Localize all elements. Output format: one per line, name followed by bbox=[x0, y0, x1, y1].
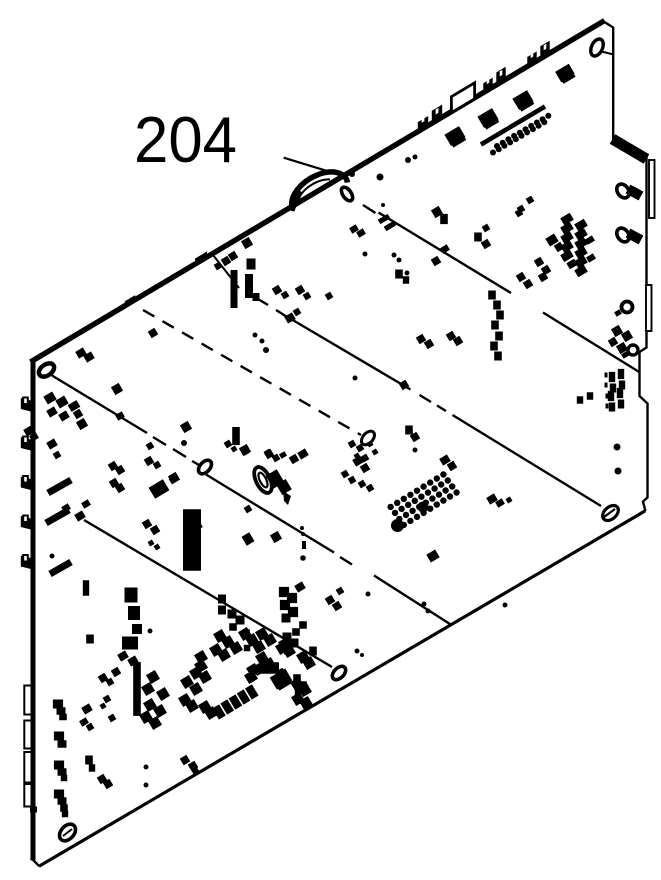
svg-text:204: 204 bbox=[134, 103, 237, 176]
